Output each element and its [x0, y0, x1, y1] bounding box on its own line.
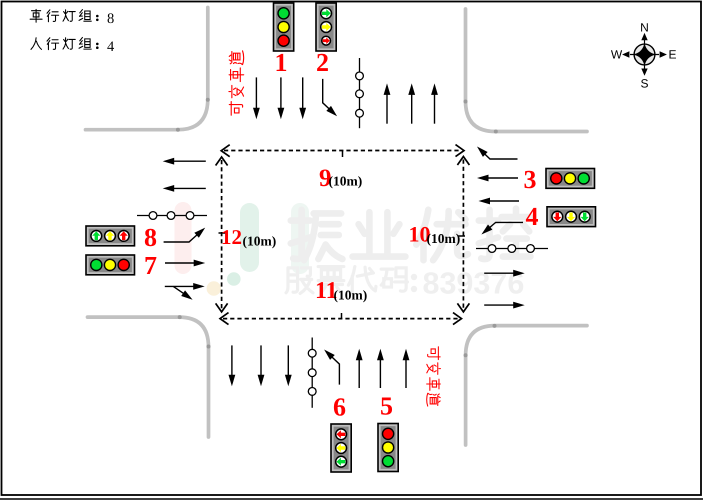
svg-text:(10m): (10m)	[334, 288, 368, 303]
svg-text:(10m): (10m)	[427, 231, 461, 246]
svg-text:E: E	[668, 48, 676, 62]
svg-text:4: 4	[526, 202, 539, 231]
svg-text:4: 4	[107, 39, 115, 55]
svg-text:6: 6	[333, 393, 346, 422]
svg-text:2: 2	[316, 48, 329, 77]
svg-text:(10m): (10m)	[329, 174, 363, 189]
svg-text:N: N	[640, 21, 649, 35]
svg-text:S: S	[640, 77, 648, 91]
svg-text:1: 1	[275, 48, 288, 77]
svg-text:839376: 839376	[423, 267, 525, 301]
svg-text:3: 3	[524, 165, 537, 194]
svg-text:(10m): (10m)	[243, 234, 277, 249]
svg-text:W: W	[611, 48, 623, 62]
svg-text:12: 12	[221, 225, 242, 249]
svg-text:8: 8	[144, 223, 157, 252]
svg-text:8: 8	[107, 11, 114, 27]
svg-text:7: 7	[144, 251, 157, 280]
svg-text:5: 5	[380, 392, 393, 421]
